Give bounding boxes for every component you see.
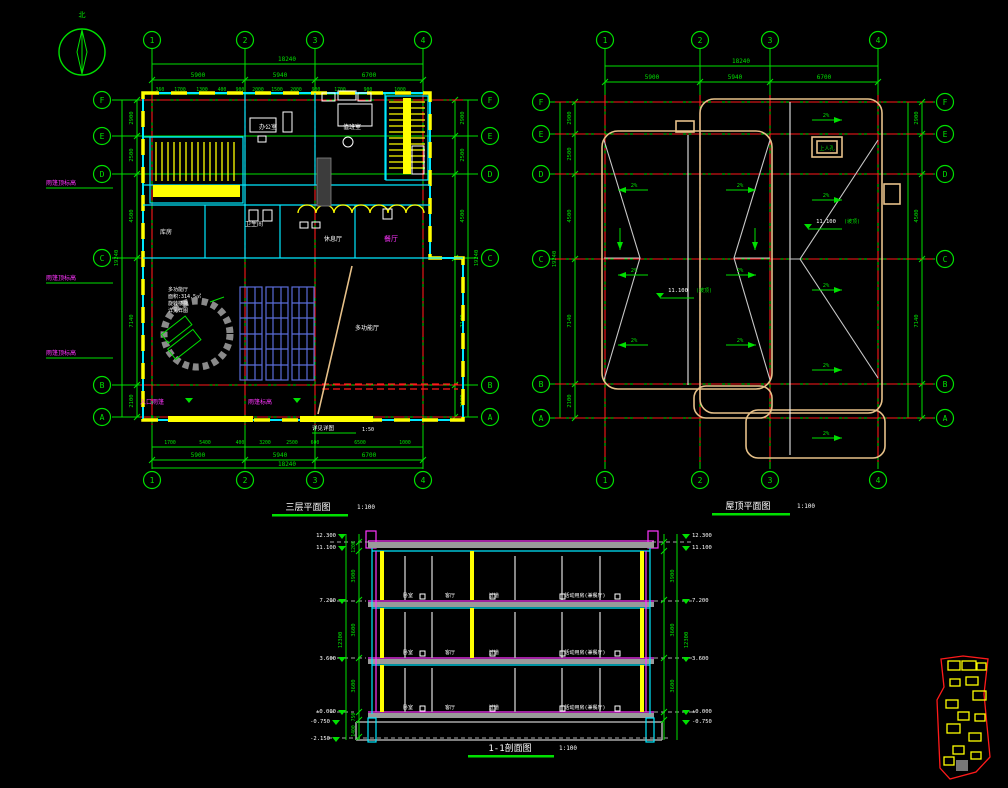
axis-bubble-label: E <box>943 130 948 139</box>
slope-label: 2% <box>823 113 830 119</box>
dim-label: 2100 <box>567 394 573 407</box>
note-line: 详见详图 <box>168 307 188 314</box>
axis-bubble-label: C <box>539 255 544 264</box>
floor-plan: 1 2 3 4 1 2 3 4 F E D C B A F E D C B A … <box>46 32 499 489</box>
axis-bubble-label: 4 <box>421 36 426 45</box>
note-line: 多功能厅 <box>168 286 188 293</box>
dim-label: 5940 <box>273 452 288 459</box>
ref-label: 详见详图 <box>312 424 335 432</box>
dim-label: 18240 <box>278 56 296 63</box>
slope-label: 2% <box>737 268 744 274</box>
axis-bubble-label: 4 <box>876 476 881 485</box>
axis-bubble-label: 2 <box>243 476 248 485</box>
room-label: 活动用房(兼餐厅) <box>564 649 605 656</box>
room-label: 活动用房(兼餐厅) <box>564 704 605 711</box>
axis-bubble-label: B <box>539 380 544 389</box>
axis-bubble-label: B <box>488 381 493 390</box>
dim-label: 12300 <box>684 632 690 649</box>
roof-plan-ridges <box>604 102 878 455</box>
elevation-value: 12.300 <box>316 533 336 539</box>
axis-bubble-label: E <box>539 130 544 139</box>
roof-plan-dimensions: 18240 5900 5940 6700 2900 2500 4500 7140… <box>552 58 920 408</box>
slope-label: 2% <box>737 183 744 189</box>
elevation-value: 11.100 <box>692 545 712 551</box>
dim-label: 18240 <box>732 58 750 65</box>
axis-bubble-label: D <box>539 170 544 179</box>
section-drawing: 1200 3900 3600 3600 750 1400 12300 3900 … <box>310 531 712 742</box>
dim-label: 2900 <box>914 111 920 124</box>
section-structure <box>328 531 694 742</box>
dim-label: 3200 <box>259 440 271 446</box>
roof-hatch-label: 上人孔 <box>819 145 834 152</box>
dim-label: 1400 <box>351 725 357 737</box>
dim-label: 2900 <box>460 111 466 124</box>
dim-label: 5400 <box>199 440 211 446</box>
dim-label: 19240 <box>114 250 120 267</box>
room-label: 客厅 <box>445 649 455 656</box>
room-label: 过道 <box>489 704 499 711</box>
dim-label: 400 <box>236 440 245 446</box>
floor-plan-dimensions: 18240 5900 5940 6700 360 1700 1300 400 9… <box>114 56 480 468</box>
section-room-labels: 卧室 客厅 过道 活动用房(兼餐厅) 卧室 客厅 过道 活动用房(兼餐厅) 卧室… <box>403 592 606 711</box>
axis-bubble-label: D <box>100 170 105 179</box>
slope-label: 2% <box>823 431 830 437</box>
canopy-elevation-label: 雨篷顶标高 <box>46 274 76 282</box>
room-label: 卫生间 <box>245 220 263 228</box>
axis-bubble-label: C <box>100 254 105 263</box>
dim-label: 1000 <box>399 440 411 446</box>
axis-bubble-label: F <box>100 96 105 105</box>
entry-canopy-label: 入口雨篷 <box>140 398 164 406</box>
room-label: 卧室 <box>403 704 413 711</box>
roof-plan-centerlines <box>555 95 933 462</box>
room-label: 餐厅 <box>384 234 398 243</box>
room-label: 库房 <box>160 228 172 236</box>
dim-label: 3600 <box>670 679 676 692</box>
slope-label: 2% <box>737 338 744 344</box>
dim-label: 3600 <box>351 623 357 636</box>
key-map-building <box>956 760 968 771</box>
note-line: 面积:314.5㎡ <box>168 293 201 300</box>
dim-label: 6500 <box>354 440 366 446</box>
dim-label: 3600 <box>670 623 676 636</box>
floor-slab <box>368 602 654 607</box>
elevation-value: -2.150 <box>310 736 330 742</box>
note-line: 旋转楼梯 <box>168 300 188 307</box>
dim-label: 2500 <box>129 148 135 161</box>
axis-bubble-label: F <box>488 96 493 105</box>
room-label: 活动用房(兼餐厅) <box>564 592 605 599</box>
axis-bubble-label: B <box>943 380 948 389</box>
dim-label: 5940 <box>273 72 288 79</box>
roof-plan-title: 屋顶平面图 <box>725 501 770 512</box>
elevation-value: 12.300 <box>692 533 712 539</box>
elevation-value: 7.200 <box>319 598 336 604</box>
ref-scale: 1:50 <box>362 427 374 433</box>
room-label: 过道 <box>489 649 499 656</box>
axis-bubble-label: 2 <box>698 476 703 485</box>
axis-bubble-label: 4 <box>421 476 426 485</box>
axis-bubble-label: A <box>943 414 948 423</box>
floor-plan-skylight-panels <box>240 287 314 380</box>
elevation-value: 7.200 <box>692 598 709 604</box>
roof-plan-scale: 1:100 <box>797 503 815 510</box>
axis-bubble-label: B <box>100 381 105 390</box>
roof-plan-axis-bubbles: 1 2 3 4 1 2 3 4 F E D C B A F E D C B A <box>533 32 954 489</box>
axis-bubble-label: 3 <box>313 36 318 45</box>
axis-bubble-label: 4 <box>876 36 881 45</box>
section-dimensions: 1200 3900 3600 3600 750 1400 12300 3900 … <box>338 534 690 740</box>
cad-drawing-canvas[interactable]: 北 1 2 3 4 1 2 3 4 F E D C B A <box>0 0 1008 788</box>
section-scale: 1:100 <box>559 745 577 752</box>
ground-slab <box>368 713 654 718</box>
dim-label: 5900 <box>191 452 206 459</box>
dim-label: 600 <box>311 440 320 446</box>
slope-label: 2% <box>823 193 830 199</box>
dim-label: 2500 <box>286 440 298 446</box>
dim-label: 6700 <box>817 74 832 81</box>
elevation-value: 11.100 <box>668 288 688 294</box>
elevation-value: 3.600 <box>692 656 709 662</box>
slope-label: 2% <box>631 338 638 344</box>
room-label: 卧室 <box>403 649 413 656</box>
axis-bubble-label: 1 <box>603 476 608 485</box>
room-label: 过道 <box>489 592 499 599</box>
dim-label: 2500 <box>567 147 573 160</box>
dim-label: 4500 <box>914 209 920 222</box>
axis-bubble-label: 2 <box>243 36 248 45</box>
room-label: 值班室 <box>343 123 361 131</box>
axis-bubble-label: C <box>943 255 948 264</box>
dim-label: 6700 <box>362 72 377 79</box>
dim-label: 4500 <box>129 209 135 222</box>
axis-bubble-label: 1 <box>603 36 608 45</box>
roof-slab <box>368 542 654 548</box>
room-label: 客厅 <box>445 704 455 711</box>
dim-label: 1200 <box>351 541 357 553</box>
axis-bubble-label: A <box>488 413 493 422</box>
axis-bubble-label: E <box>488 132 493 141</box>
room-label: 客厅 <box>445 592 455 599</box>
dim-label: 750 <box>351 713 357 722</box>
dim-label: 2900 <box>129 111 135 124</box>
dim-label: 5900 <box>645 74 660 81</box>
roof-plan: 1 2 3 4 1 2 3 4 F E D C B A F E D C B A … <box>533 32 954 489</box>
canopy-label: 雨篷标高 <box>248 398 272 406</box>
axis-bubble-label: 3 <box>768 36 773 45</box>
drawing-svg: 北 1 2 3 4 1 2 3 4 F E D C B A <box>0 0 1008 788</box>
elevation-value: -0.750 <box>692 719 712 725</box>
dim-label: 7140 <box>567 314 573 327</box>
dim-label: 4500 <box>567 209 573 222</box>
axis-bubble-label: 3 <box>768 476 773 485</box>
dim-label: 2100 <box>129 394 135 407</box>
room-label: 多功能厅 <box>355 324 379 332</box>
dim-label: 6700 <box>362 452 377 459</box>
dim-label: 2900 <box>567 111 573 124</box>
canopy-elevation-label: 雨篷顶标高 <box>46 349 76 357</box>
floor-plan-title: 三层平面图 <box>285 502 330 513</box>
slope-label: 2% <box>823 283 830 289</box>
dim-label: 4500 <box>460 209 466 222</box>
axis-bubble-label: C <box>488 254 493 263</box>
elevation-value: 11.100 <box>816 219 836 225</box>
elevation-value: -0.750 <box>310 719 330 725</box>
section-elevations-right: 12.300 11.100 7.200 3.600 ±0.000 -0.750 <box>682 533 712 725</box>
floor-plan-walls <box>143 93 463 422</box>
dim-label: 12300 <box>338 632 344 649</box>
slope-label: 2% <box>823 363 830 369</box>
axis-bubble-label: F <box>539 98 544 107</box>
floor-plan-scale: 1:100 <box>357 504 375 511</box>
north-label: 北 <box>79 11 86 19</box>
floor-slab <box>368 659 654 664</box>
dim-label: 2500 <box>460 148 466 161</box>
elevation-value: ±0.000 <box>316 709 336 715</box>
roof-plan-outline: 上人孔 <box>602 99 900 458</box>
roof-plan-slope-arrows: 2% 2% 2% 2% 2% 2% 2% 2% 2% 2% 2% <box>617 113 842 441</box>
dim-label: 7140 <box>914 314 920 327</box>
canopy-elevation-label: 雨篷顶标高 <box>46 179 76 187</box>
site-key-map <box>937 656 990 779</box>
room-label: 卧室 <box>403 592 413 599</box>
dim-label: 5940 <box>728 74 743 81</box>
axis-bubble-label: 3 <box>313 476 318 485</box>
section-title: 1-1剖面图 <box>488 742 531 754</box>
axis-bubble-label: E <box>100 132 105 141</box>
room-label: 办公室 <box>259 123 277 131</box>
dim-label: 5900 <box>191 72 206 79</box>
slope-label: 2% <box>631 183 638 189</box>
elevation-value: 11.100 <box>316 545 336 551</box>
elevation-note: (坡顶) <box>844 218 860 225</box>
axis-bubble-label: A <box>100 413 105 422</box>
axis-bubble-label: D <box>488 170 493 179</box>
north-arrow-icon: 北 <box>59 11 105 75</box>
dim-label: 3900 <box>351 569 357 582</box>
elevation-value: ±0.000 <box>692 709 712 715</box>
axis-bubble-label: A <box>539 414 544 423</box>
axis-bubble-label: 1 <box>150 36 155 45</box>
axis-bubble-label: F <box>943 98 948 107</box>
axis-bubble-label: D <box>943 170 948 179</box>
dim-label: 7140 <box>129 314 135 327</box>
dim-label: 19240 <box>474 250 480 267</box>
elevation-value: 3.600 <box>319 656 336 662</box>
axis-bubble-label: 1 <box>150 476 155 485</box>
axis-bubble-label: 2 <box>698 36 703 45</box>
dim-label: 1700 <box>164 440 176 446</box>
dim-label: 18240 <box>278 461 296 468</box>
room-label: 休息厅 <box>324 235 342 243</box>
dim-label: 3600 <box>351 679 357 692</box>
elevation-note: (坡顶) <box>696 287 712 294</box>
slope-label: 2% <box>631 268 638 274</box>
dim-label: 3900 <box>670 569 676 582</box>
